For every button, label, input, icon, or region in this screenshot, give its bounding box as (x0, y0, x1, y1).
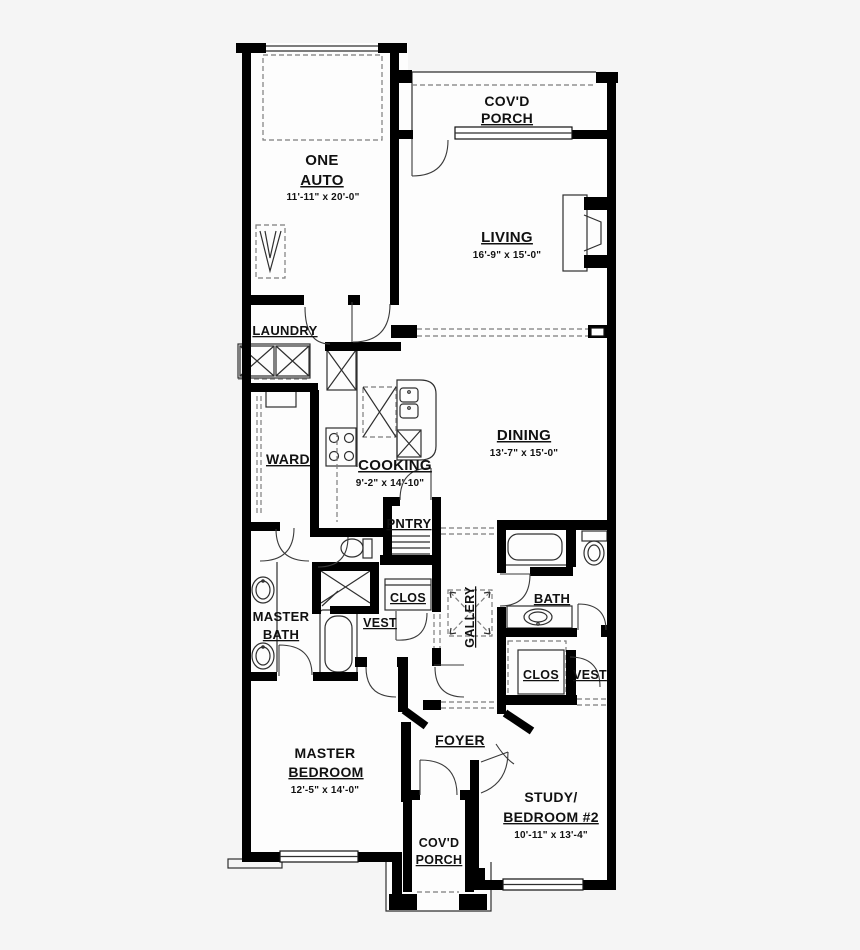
label-laundry: LAUNDRY (252, 323, 317, 338)
floor-plan-canvas: COV'D PORCH ONE AUTO 11'-11" x 20'-0" LI… (0, 0, 860, 950)
label-closet2: CLOS (523, 668, 559, 682)
label-living: LIVING (481, 229, 533, 246)
label-master-bath-1: MASTER (253, 609, 310, 624)
label-foyer: FOYER (435, 732, 485, 748)
dims-dining: 13'-7" x 15'-0" (490, 448, 558, 459)
label-dining: DINING (497, 427, 551, 444)
label-porch-bottom-2: PORCH (416, 853, 463, 867)
label-bath2: BATH (534, 591, 570, 606)
floor-plan-drawing: COV'D PORCH ONE AUTO 11'-11" x 20'-0" LI… (0, 0, 860, 950)
label-porch-top-1: COV'D (484, 93, 529, 109)
label-gallery: GALLERY (463, 586, 477, 648)
window-living-recess (591, 328, 604, 336)
label-cooking: COOKING (358, 457, 432, 474)
label-porch-top-2: PORCH (481, 110, 533, 126)
label-porch-bottom-1: COV'D (419, 836, 460, 850)
label-master-bedroom-2: BEDROOM (288, 764, 363, 780)
label-garage-1: ONE (305, 152, 338, 169)
label-vest2: VEST (573, 668, 607, 682)
window-porch (455, 127, 572, 139)
label-garage-2: AUTO (300, 172, 343, 189)
label-study-1: STUDY/ (524, 789, 577, 805)
label-closet-master: CLOS (390, 591, 426, 605)
dims-cooking: 9'-2" x 14'-10" (356, 478, 424, 489)
dims-living: 16'-9" x 15'-0" (473, 250, 541, 261)
label-pantry: PNTRY (386, 516, 431, 531)
dims-master-bedroom: 12'-5" x 14'-0" (291, 785, 359, 796)
dims-study: 10'-11" x 13'-4" (514, 830, 588, 841)
dims-garage: 11'-11" x 20'-0" (286, 192, 359, 203)
label-master-bath-2: BATH (263, 627, 299, 642)
window-study (503, 879, 583, 890)
window-master-bedroom (280, 851, 358, 862)
label-study-2: BEDROOM #2 (503, 809, 599, 825)
label-vest-master: VEST (363, 616, 397, 630)
label-master-bedroom-1: MASTER (295, 745, 356, 761)
label-ward: WARD (266, 451, 310, 467)
